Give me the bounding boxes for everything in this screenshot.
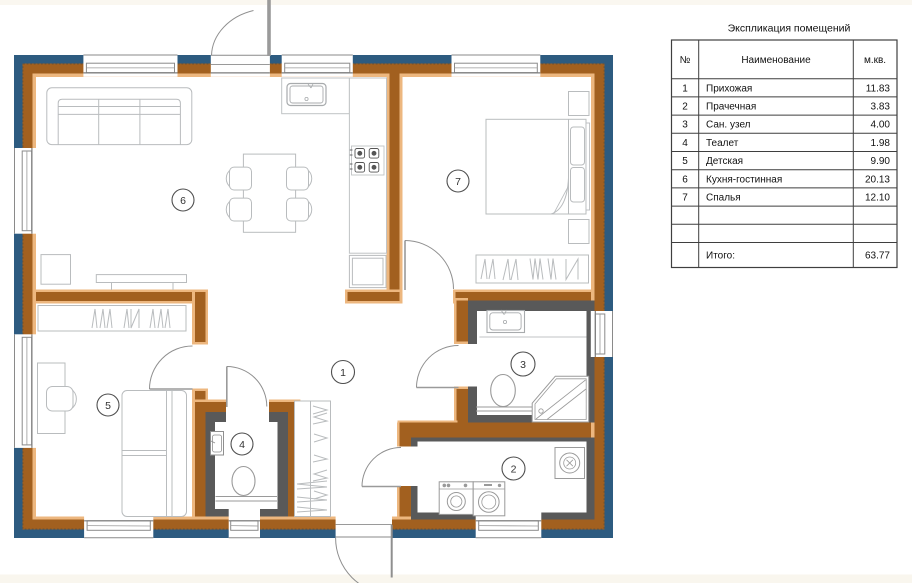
svg-text:4.00: 4.00	[871, 120, 891, 131]
svg-text:2: 2	[682, 102, 688, 113]
svg-text:3.83: 3.83	[871, 102, 891, 113]
svg-text:1: 1	[682, 83, 688, 94]
svg-text:6: 6	[180, 195, 186, 207]
svg-text:1.98: 1.98	[871, 138, 891, 149]
svg-text:Прачечная: Прачечная	[706, 102, 756, 113]
svg-text:Детская: Детская	[706, 156, 743, 167]
svg-text:3: 3	[520, 359, 526, 371]
svg-text:Теалет: Теалет	[706, 138, 739, 149]
svg-text:63.77: 63.77	[865, 251, 890, 262]
svg-text:5: 5	[105, 400, 111, 412]
svg-text:20.13: 20.13	[865, 174, 890, 185]
svg-text:Экспликация помещений: Экспликация помещений	[728, 23, 851, 35]
svg-text:м.кв.: м.кв.	[864, 55, 886, 66]
svg-text:Спалья: Спалья	[706, 193, 741, 204]
svg-text:6: 6	[682, 174, 688, 185]
svg-text:11.83: 11.83	[866, 83, 891, 94]
svg-text:1: 1	[340, 367, 346, 379]
svg-text:Итого:: Итого:	[706, 251, 735, 262]
svg-text:3: 3	[682, 120, 688, 131]
svg-text:4: 4	[682, 138, 688, 149]
svg-text:Наименование: Наименование	[741, 55, 811, 66]
svg-text:7: 7	[455, 176, 461, 188]
svg-text:2: 2	[511, 463, 517, 475]
svg-text:7: 7	[682, 193, 688, 204]
svg-text:Сан. узел: Сан. узел	[706, 120, 751, 131]
svg-text:№: №	[680, 55, 691, 66]
svg-text:9.90: 9.90	[871, 156, 891, 167]
svg-text:5: 5	[682, 156, 688, 167]
svg-text:12.10: 12.10	[865, 193, 890, 204]
svg-text:4: 4	[239, 439, 245, 451]
svg-text:Кухня-гостинная: Кухня-гостинная	[706, 174, 782, 185]
svg-text:Прихожая: Прихожая	[706, 83, 752, 94]
